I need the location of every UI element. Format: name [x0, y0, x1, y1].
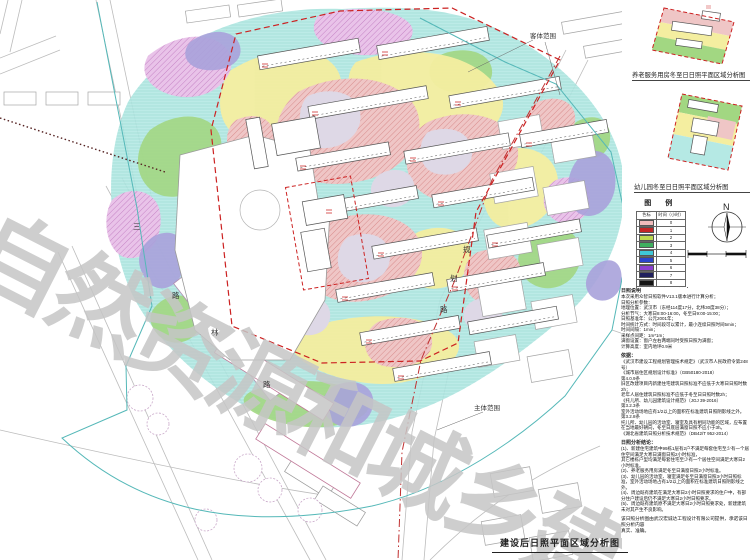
text-line: (3)、幼儿园的活动室、寝室满足冬至日满窗日照3小时日照标准，室外活动场地占有1…	[621, 474, 749, 490]
legend-row: 7	[637, 272, 686, 280]
legend-color-swatch	[639, 280, 654, 286]
text-line: 老年人居住建筑日照标准不应低于冬至日日照时数2h；	[621, 392, 749, 397]
text-line: 托儿所、幼儿园的活动室、寝室及具有相同功能的区域，应布置在当地最好朝向，冬至日底…	[621, 420, 749, 431]
drawing-title: 建设后日照平面区域分析图	[492, 536, 628, 553]
north-label: N	[723, 202, 730, 212]
legend-row: 5	[637, 257, 686, 265]
legend-hours-value: 4	[657, 249, 686, 257]
road-name-char: 路	[263, 379, 271, 390]
legend-color-swatch	[639, 265, 654, 271]
legend-row: 4	[637, 249, 686, 257]
text-line: 真实、准确。	[621, 528, 749, 534]
road-name-char: 路	[440, 304, 448, 315]
sunshine-notes-block: 日照说明 本次采用众智日照软件V13.1版本进行计算分析；日照分析参数：地理位置…	[621, 288, 749, 349]
elderly-care-inset-caption: 养老服务用房冬至日日照平面区域分析图	[632, 70, 750, 81]
road-name-char: 规	[463, 244, 471, 255]
provider-statement: 该日照分析图由武汉宏诚达工程设计有限公司提供，承诺该日照分析内容真实、准确。	[621, 516, 749, 533]
legend-hours-value: 5	[657, 257, 686, 265]
road-name-char: 划	[450, 273, 458, 284]
text-line: (5)、周边既有建筑原不满足大寒日2小时日照要求处，新建建筑未对其产生不良影响。	[621, 501, 749, 512]
legend-row: 2	[637, 234, 686, 242]
kindergarten-inset-map	[658, 86, 750, 180]
scale-bar	[686, 248, 750, 260]
legend-color-swatch	[639, 250, 654, 256]
legend-color-swatch	[639, 220, 654, 226]
legend-row: 8	[637, 279, 686, 287]
text-line: 《武汉市建设工程规划管理技术规定》（武汉市人民政府令第248号）	[621, 359, 749, 370]
analysis-text-column: 日照说明 本次采用众智日照软件V13.1版本进行计算分析；日照分析参数：地理位置…	[621, 288, 749, 538]
legend-hours-value: 3	[657, 242, 686, 250]
text-line: 该日照分析图由武汉宏诚达工程设计有限公司提供，承诺该日照分析内容	[621, 516, 749, 527]
legend-row: 6	[637, 264, 686, 272]
legend-hours-value: 8	[657, 279, 686, 287]
legend-hours-value: 7	[657, 272, 686, 280]
text-line: 地理位置：武汉市（东经114度17分，北纬30度38分）；	[621, 305, 749, 310]
legend-hours-value: 1	[657, 227, 686, 235]
legend-hours-value: 0	[657, 219, 686, 227]
kindergarten-inset-caption: 幼儿园冬至日日照平面区域分析图	[634, 182, 750, 193]
legend-color-swatch	[639, 272, 654, 278]
text-line: 计算高度：室内地坪0.9米	[621, 344, 749, 349]
elderly-care-inset-map	[636, 2, 750, 68]
subject-scope-label: 主体范围	[474, 402, 500, 412]
legend-table: 色标 时间（小时） 012345678	[636, 211, 686, 287]
legend-hours-value: 2	[657, 234, 686, 242]
legend-row: 0	[637, 219, 686, 227]
legend-color-swatch	[639, 235, 654, 241]
road-name-char: 路	[172, 290, 180, 301]
text-line: 旧区改建项目内新建住宅建筑日照标准不应低于大寒日日照时数2h；	[621, 381, 749, 392]
conclusion-block: 日照分析结论： (1)、新建住宅建筑中99栋1层有2户不满足每套住宅至少有一个居…	[621, 440, 749, 512]
legend-color-swatch	[639, 242, 654, 248]
sunshine-analysis-drawing: 自然资源和城乡建 客体范围 主体范围 三路林路规划路 养老服务用房冬至日日照平面…	[0, 0, 750, 560]
text-line: 室外活动场地应有1/2以上的面积在标准建筑日照阴影线之外。	[621, 409, 749, 414]
object-scope-label: 客体范围	[530, 30, 556, 40]
road-name-char: 三	[133, 221, 141, 232]
legend-color-swatch	[639, 257, 654, 263]
road-name-char: 林	[211, 327, 219, 338]
text-line: (1)、新建住宅建筑中99栋1层有2户不满足每套住宅至少有一个居住空间满足大寒日…	[621, 446, 749, 457]
text-line: 其它楼栋户型均满足每套住宅至少有一个居住空间满足大寒日2小时标准。	[621, 457, 749, 468]
legend-row: 1	[637, 227, 686, 235]
legend-title: 图 例	[635, 198, 688, 208]
north-compass: N	[700, 198, 750, 246]
legend-hours-value: 6	[657, 264, 686, 272]
text-line: (4)、周边既有建筑在满足大寒日2小时日照要求的住户中，有部分住户建设后仍不满足…	[621, 490, 749, 501]
legend-row: 3	[637, 242, 686, 250]
basis-block: 依据： 《武汉市建设工程规划管理技术规定》（武汉市人民政府令第248号）《城市居…	[621, 353, 749, 436]
legend-time-header: 时间（小时）	[657, 212, 686, 220]
legend-color-header: 色标	[637, 212, 657, 220]
legend-color-swatch	[639, 227, 654, 233]
text-line: 《湖北省建筑日照分析技术规范》（DB42/T 952-2014）	[621, 431, 749, 436]
